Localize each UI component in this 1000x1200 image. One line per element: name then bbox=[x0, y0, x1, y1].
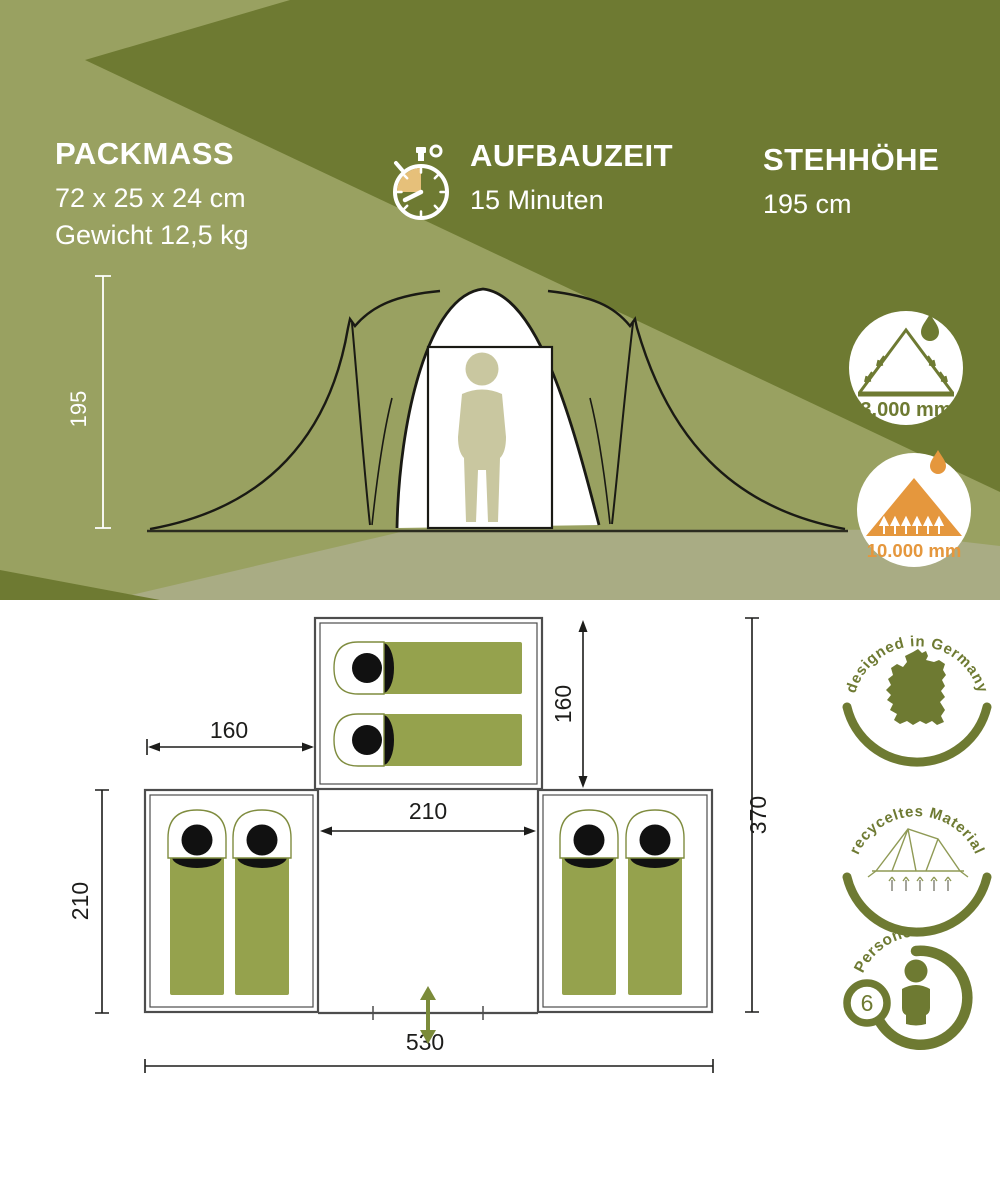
waterproof-badge-floor: 10.000 mm bbox=[857, 450, 971, 567]
sleeping-bags-sides bbox=[168, 810, 684, 995]
waterproof-flysheet-value: 3.000 mm bbox=[860, 399, 951, 421]
sleeping-bag-icon bbox=[233, 810, 291, 995]
dim-top-room-depth: 160 bbox=[550, 685, 576, 723]
sleeping-bag-icon bbox=[168, 810, 226, 995]
badge-persons: 6 Personen bbox=[847, 923, 967, 1045]
waterproof-badge-flysheet: 3.000 mm bbox=[849, 311, 963, 425]
persons-count: 6 bbox=[861, 990, 874, 1016]
sleeping-bag-icon bbox=[334, 642, 522, 694]
header-section: PACKMASS 72 x 25 x 24 cm Gewicht 12,5 kg bbox=[0, 0, 1000, 600]
tent-illustration: 195 bbox=[0, 0, 1000, 600]
person-icon bbox=[902, 960, 930, 1026]
badge-designed-in-germany: designed in Germany bbox=[843, 633, 992, 762]
badge-recycled-label: recyceltes Material bbox=[846, 803, 987, 857]
floorplan-section: 160 160 210 210 370 530 bbox=[0, 600, 1000, 1200]
sleeping-bag-icon bbox=[560, 810, 618, 995]
sleeping-bag-icon bbox=[334, 714, 522, 766]
floorplan-drawing: 160 160 210 210 370 530 bbox=[0, 600, 1000, 1200]
dim-side-room-depth: 210 bbox=[67, 882, 93, 920]
tent-infographic: PACKMASS 72 x 25 x 24 cm Gewicht 12,5 kg bbox=[0, 0, 1000, 1200]
dim-left-room-width: 160 bbox=[210, 717, 248, 743]
dim-center-width: 210 bbox=[409, 798, 447, 824]
height-dim-label: 195 bbox=[66, 391, 91, 428]
tent-sketch-icon bbox=[868, 829, 968, 891]
height-dimension: 195 bbox=[66, 276, 111, 528]
germany-map-icon bbox=[886, 649, 946, 725]
badge-recycled-material: recyceltes Material bbox=[846, 803, 987, 932]
tent-drawing bbox=[147, 289, 848, 531]
waterproof-floor-value: 10.000 mm bbox=[867, 540, 962, 561]
svg-text:recyceltes Material: recyceltes Material bbox=[846, 803, 987, 857]
sleeping-bag-icon bbox=[626, 810, 684, 995]
dim-total-depth: 370 bbox=[745, 796, 771, 834]
